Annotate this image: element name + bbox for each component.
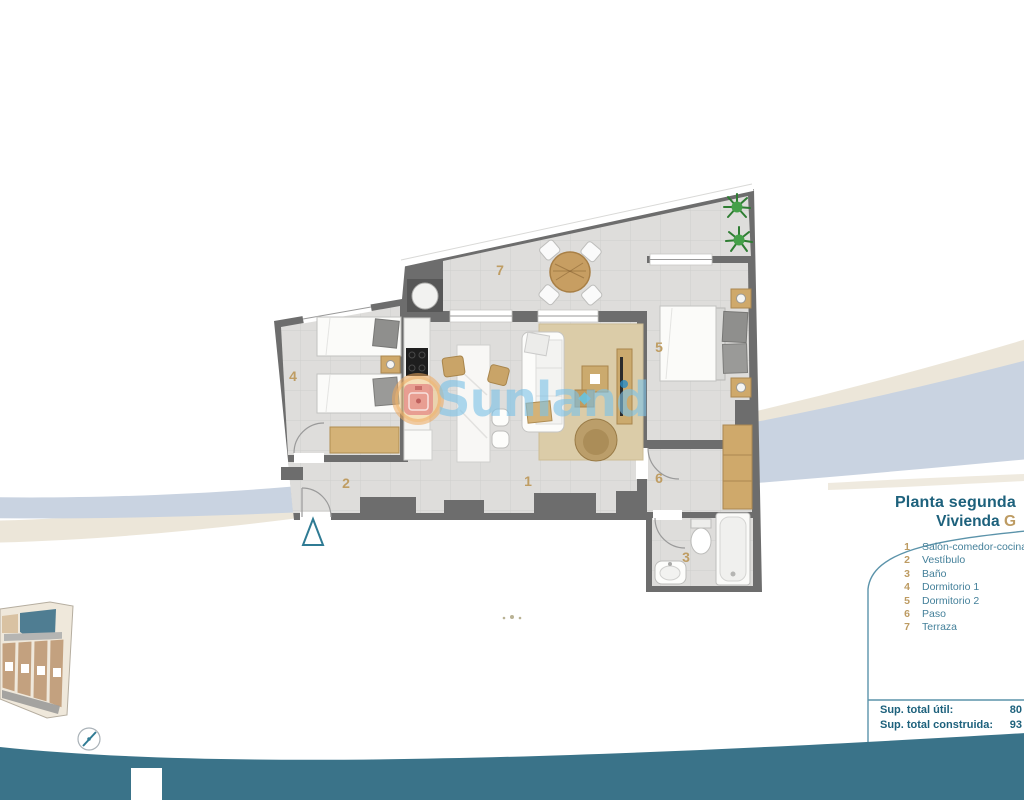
legend-item: 4 Dormitorio 1 bbox=[880, 581, 1024, 594]
room-label-3: 3 bbox=[682, 549, 690, 565]
toilet bbox=[691, 519, 711, 554]
swoosh-beige-sliver bbox=[828, 473, 1024, 490]
legend-item: 7 Terraza bbox=[880, 621, 1024, 634]
legend-item-label: Salón-comedor-cocina bbox=[922, 541, 1024, 553]
entrance-arrow bbox=[303, 519, 323, 545]
unit-letter: G bbox=[1004, 513, 1016, 530]
legend-item-number: 2 bbox=[880, 554, 910, 566]
footer-logo-block bbox=[131, 768, 162, 800]
room-label-5: 5 bbox=[655, 339, 663, 355]
watermark-logo-icon bbox=[395, 376, 441, 422]
legend-item-label: Vestíbulo bbox=[922, 554, 965, 566]
tick-marks bbox=[503, 615, 522, 619]
legend-item-number: 5 bbox=[880, 595, 910, 607]
nightstand bbox=[381, 356, 400, 373]
bench bbox=[330, 427, 399, 453]
legend-item: 5 Dormitorio 2 bbox=[880, 595, 1024, 608]
legend-item: 2 Vestíbulo bbox=[880, 554, 1024, 567]
legend-item-number: 6 bbox=[880, 608, 910, 620]
totals-row: Sup. total construida: 93 bbox=[880, 719, 1022, 731]
totals-value: 93 bbox=[1010, 719, 1022, 731]
room-label-4: 4 bbox=[289, 368, 297, 384]
legend-item-label: Paso bbox=[922, 608, 946, 620]
watermark-text: Sunland bbox=[436, 372, 649, 428]
area-totals: Sup. total útil: 80 Sup. total construid… bbox=[880, 704, 1022, 734]
room-label-6: 6 bbox=[655, 470, 663, 486]
page-title: Planta segunda bbox=[895, 494, 1016, 512]
key-plan bbox=[0, 602, 73, 718]
watermark-dot bbox=[620, 380, 628, 388]
legend-item-label: Terraza bbox=[922, 621, 957, 633]
legend-item-number: 4 bbox=[880, 581, 910, 593]
totals-row: Sup. total útil: 80 bbox=[880, 704, 1022, 716]
legend-item: 3 Baño bbox=[880, 568, 1024, 581]
legend-item: 6 Paso bbox=[880, 608, 1024, 621]
room-label-2: 2 bbox=[342, 475, 350, 491]
legend-item: 1 Salón-comedor-cocina bbox=[880, 541, 1024, 554]
watermark: Sunland bbox=[395, 372, 649, 428]
floor-plan: 1 2 3 4 5 6 7 Sunland bbox=[268, 183, 768, 593]
legend-item-label: Dormitorio 1 bbox=[922, 581, 979, 593]
title-block: Planta segunda Vivienda G bbox=[895, 494, 1016, 530]
room-label-7: 7 bbox=[496, 262, 504, 278]
room-legend: 1 Salón-comedor-cocina 2 Vestíbulo 3 Bañ… bbox=[880, 541, 1024, 635]
legend-item-number: 7 bbox=[880, 621, 910, 633]
water-heater bbox=[407, 279, 443, 312]
page: 1 2 3 4 5 6 7 Sunland Planta segunda Viv… bbox=[0, 0, 1024, 800]
legend-item-number: 1 bbox=[880, 541, 910, 553]
legend-item-number: 3 bbox=[880, 568, 910, 580]
legend-item-label: Baño bbox=[922, 568, 947, 580]
room-label-1: 1 bbox=[524, 473, 532, 489]
totals-label: Sup. total útil: bbox=[880, 704, 953, 716]
wardrobe bbox=[723, 425, 752, 509]
unit-title: Vivienda G bbox=[895, 513, 1016, 530]
totals-label: Sup. total construida: bbox=[880, 719, 993, 731]
bathtub bbox=[716, 513, 750, 585]
unit-prefix: Vivienda bbox=[936, 513, 999, 530]
totals-value: 80 bbox=[1010, 704, 1022, 716]
legend-item-label: Dormitorio 2 bbox=[922, 595, 979, 607]
compass-icon bbox=[78, 728, 100, 750]
